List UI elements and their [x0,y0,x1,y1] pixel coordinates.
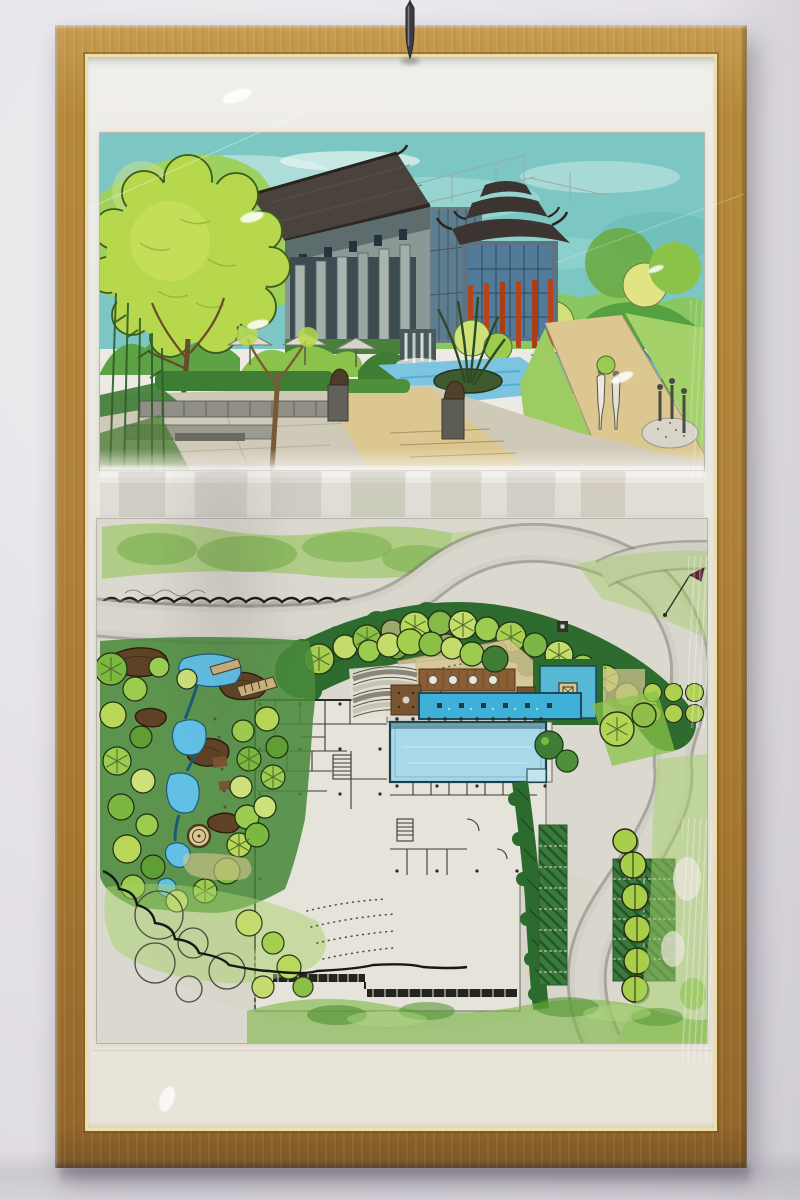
main-pool [390,717,546,782]
perspective-rendering [100,133,704,470]
lap-channel [419,693,581,719]
site-plan-rendering [97,519,707,1043]
mat-bevel-line [92,1050,712,1051]
photo-of-framed-artwork [0,0,800,1200]
pond-rock-garden [97,637,315,913]
paper-fade [100,449,704,470]
hanging-hook [396,0,424,70]
wall-lower-shading [0,1150,800,1200]
